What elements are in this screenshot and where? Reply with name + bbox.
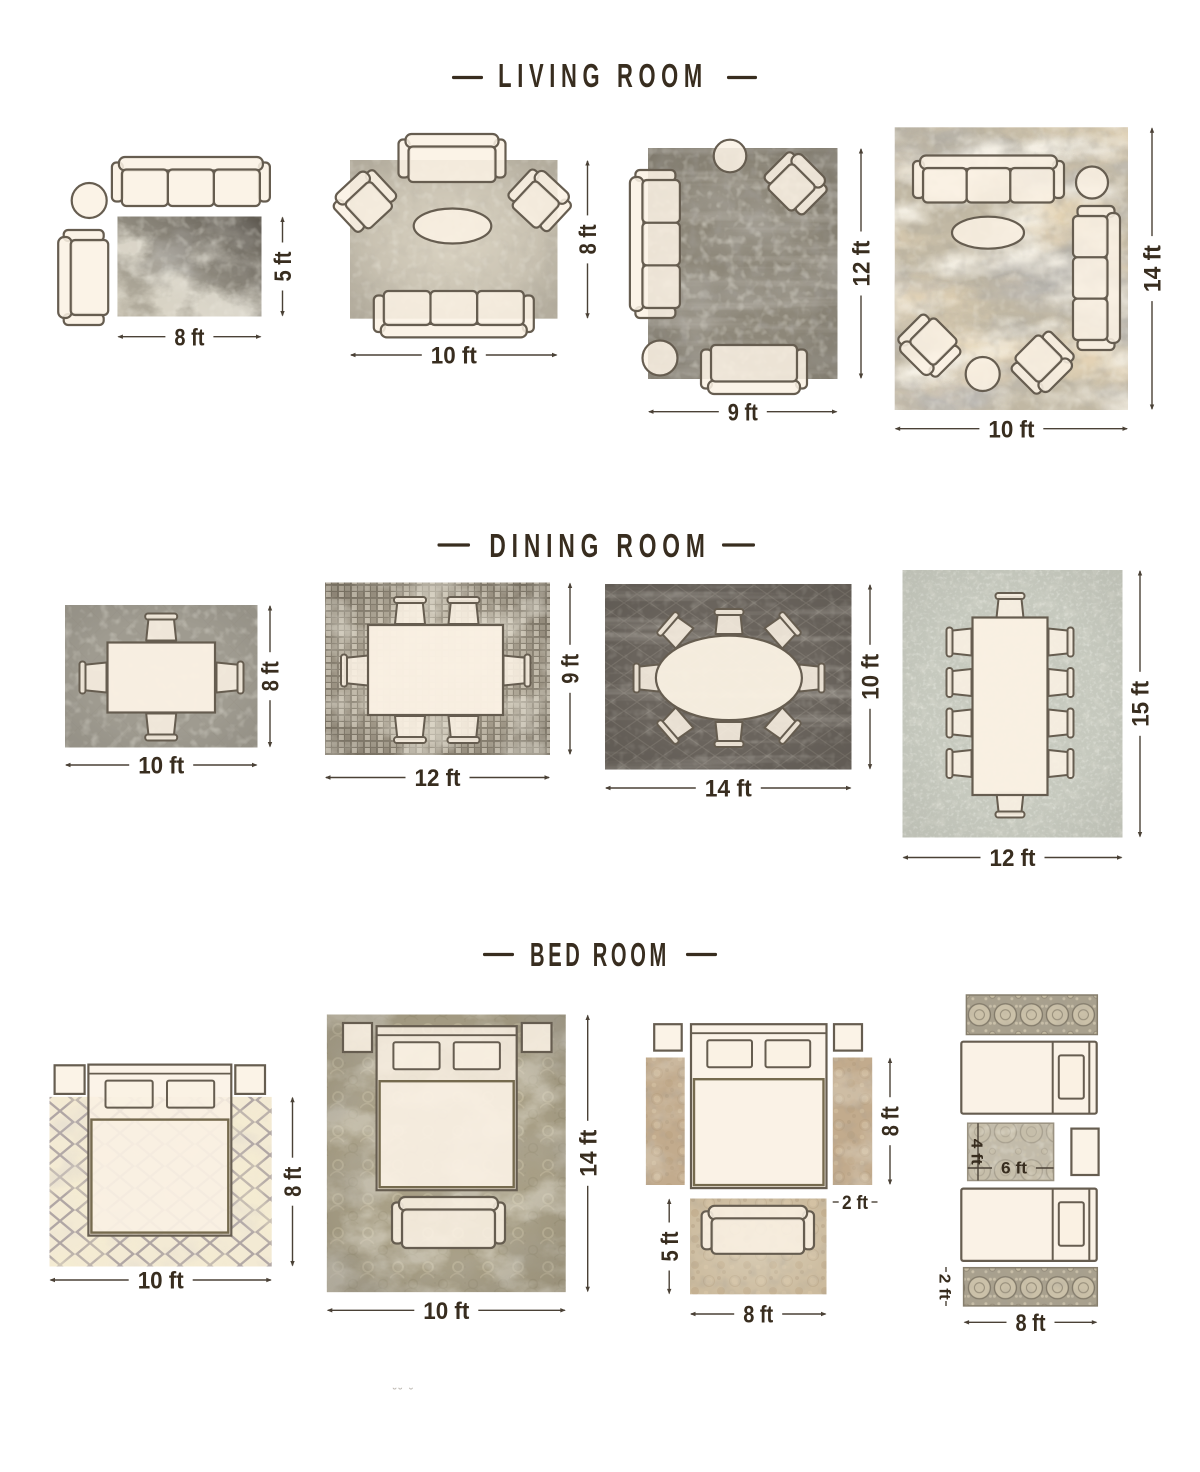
svg-text:5 ft: 5 ft [657, 1231, 684, 1261]
svg-text:5 ft: 5 ft [270, 251, 297, 281]
svg-text:10 ft: 10 ft [138, 753, 184, 780]
svg-text:10 ft: 10 ft [431, 343, 477, 370]
svg-text:14 ft: 14 ft [705, 776, 752, 803]
svg-text:9 ft: 9 ft [558, 654, 585, 684]
svg-text:8 ft: 8 ft [258, 661, 285, 691]
svg-text:DINING ROOM: DINING ROOM [489, 528, 710, 565]
svg-text:10 ft: 10 ft [423, 1298, 469, 1325]
svg-text:15 ft: 15 ft [1128, 681, 1155, 727]
svg-text:8 ft: 8 ft [878, 1106, 905, 1136]
svg-text:8 ft: 8 ft [575, 224, 602, 254]
svg-text:8 ft: 8 ft [1016, 1310, 1046, 1337]
svg-text:8 ft: 8 ft [280, 1167, 307, 1197]
svg-text:LIVING ROOM: LIVING ROOM [498, 58, 708, 95]
svg-text:2 ft: 2 ft [936, 1274, 953, 1301]
svg-text:BED ROOM: BED ROOM [530, 936, 670, 973]
svg-text:12 ft: 12 ft [990, 845, 1036, 872]
svg-text:2 ft: 2 ft [842, 1193, 869, 1214]
svg-text:14 ft: 14 ft [575, 1130, 602, 1177]
svg-text:9 ft: 9 ft [728, 399, 758, 426]
svg-text:14 ft: 14 ft [1140, 245, 1167, 292]
svg-text:10 ft: 10 ft [138, 1268, 184, 1295]
svg-text:6 ft: 6 ft [1001, 1159, 1027, 1178]
svg-text:˘˘ ˘: ˘˘ ˘ [392, 1387, 415, 1399]
svg-text:4 ft: 4 ft [968, 1139, 985, 1166]
svg-text:10 ft: 10 ft [988, 416, 1034, 443]
svg-text:12 ft: 12 ft [415, 765, 461, 792]
svg-text:8 ft: 8 ft [174, 324, 204, 351]
svg-text:12 ft: 12 ft [849, 241, 876, 287]
svg-text:10 ft: 10 ft [858, 654, 885, 700]
svg-text:8 ft: 8 ft [743, 1302, 773, 1329]
